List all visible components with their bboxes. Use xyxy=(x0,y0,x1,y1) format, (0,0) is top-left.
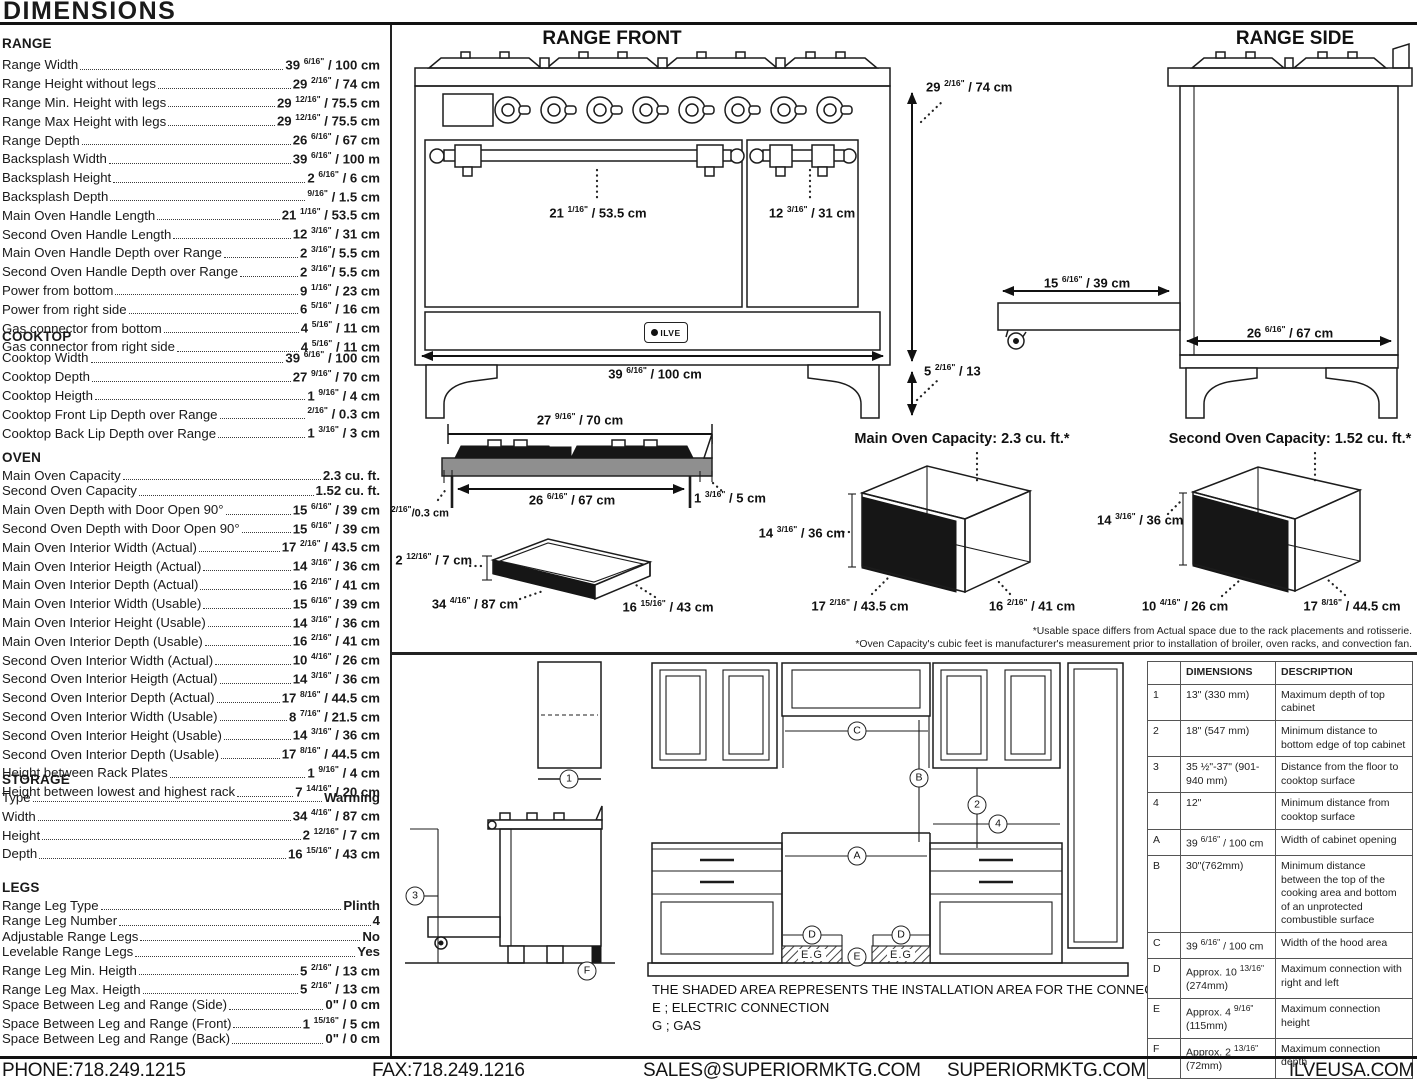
spec-value: 2 6/16" / 6 cm xyxy=(307,167,380,186)
footer-brand-website: ILVEUSA.COM xyxy=(1289,1060,1414,1080)
spec-heading-cooktop: COOKTOP xyxy=(2,329,380,344)
spec-label: Space Between Leg and Range (Side) xyxy=(2,997,227,1012)
leader-dots xyxy=(129,313,298,314)
footer-fax: FAX:718.249.1216 xyxy=(372,1060,525,1080)
spec-value: 39 6/16" / 100 m xyxy=(293,148,380,167)
spec-label: Type xyxy=(2,790,31,805)
table-header-key xyxy=(1148,662,1181,685)
leader-dots xyxy=(221,758,280,759)
spec-row: Backsplash Height 2 6/16" / 6 cm xyxy=(2,167,380,186)
main-oven-capacity-title: Main Oven Capacity: 2.3 cu. ft.* xyxy=(854,431,1069,447)
leader-dots xyxy=(199,551,280,552)
spec-section-oven: OVEN Main Oven Capacity 2.3 cu. ft. Seco… xyxy=(2,450,380,800)
spec-row: Space Between Leg and Range (Front) 1 15… xyxy=(2,1013,380,1032)
table-cell-description: Minimum distance from cooktop surface xyxy=(1276,793,1413,829)
table-cell-key: B xyxy=(1148,855,1181,932)
table-cell-dimension: 39 6/16" / 100 cm xyxy=(1181,933,1276,959)
spec-value: 0" / 0 cm xyxy=(325,997,380,1012)
spec-value: 15 6/16" / 39 cm xyxy=(293,593,380,612)
installation-elevation xyxy=(648,663,1128,976)
spec-value: 34 4/16" / 87 cm xyxy=(293,805,380,824)
table-cell-dimension: 35 ½"-37" (901-940 mm) xyxy=(1181,757,1276,793)
spec-value: 17 8/16" / 44.5 cm xyxy=(282,687,380,706)
spec-value: 15 6/16" / 39 cm xyxy=(293,499,380,518)
leader-dots xyxy=(226,514,291,515)
spec-row: Main Oven Interior Depth (Actual) 16 2/1… xyxy=(2,574,380,593)
cooktop-inner-dim-label: 26 6/16" / 67 cm xyxy=(529,491,615,507)
spec-row: Second Oven Handle Depth over Range 2 3/… xyxy=(2,261,380,280)
range-side-drawing xyxy=(998,44,1412,418)
table-cell-dimension: 18" (547 mm) xyxy=(1181,720,1276,756)
spec-label: Cooktop Back Lip Depth over Range xyxy=(2,426,216,441)
spec-label: Main Oven Interior Width (Usable) xyxy=(2,596,201,611)
spec-row: Range Leg Min. Heigth 5 2/16" / 13 cm xyxy=(2,960,380,979)
spec-label: Height xyxy=(2,828,40,843)
leader-dots xyxy=(139,495,314,496)
leader-dots xyxy=(215,664,291,665)
spec-label: Space Between Leg and Range (Front) xyxy=(2,1016,231,1031)
table-row: E Approx. 4 9/16" (115mm) Maximum connec… xyxy=(1148,999,1413,1039)
spec-label: Backsplash Width xyxy=(2,151,107,166)
spec-row: Main Oven Handle Depth over Range 2 3/16… xyxy=(2,242,380,261)
table-cell-description: Distance from the floor to cooktop surfa… xyxy=(1276,757,1413,793)
spec-label: Power from bottom xyxy=(2,283,113,298)
spec-row: Range Leg Type Plinth xyxy=(2,898,380,913)
footnote-capacity: *Oven Capacity's cubic feet is manufactu… xyxy=(855,639,1412,650)
spec-value: 2.3 cu. ft. xyxy=(323,468,380,483)
main-oven-width-label: 17 2/16" / 43.5 cm xyxy=(811,597,908,613)
marker-A: A xyxy=(848,847,867,866)
spec-label: Cooktop Depth xyxy=(2,369,90,384)
spec-value: 29 12/16" / 75.5 cm xyxy=(277,92,380,111)
spec-value: 1 3/16" / 3 cm xyxy=(307,422,380,441)
spec-label: Range Leg Number xyxy=(2,913,117,928)
spec-label: Width xyxy=(2,809,36,824)
spec-label: Second Oven Depth with Door Open 90° xyxy=(2,521,240,536)
spec-row: Space Between Leg and Range (Back) 0" / … xyxy=(2,1031,380,1046)
spec-label: Second Oven Interior Heigth (Actual) xyxy=(2,671,218,686)
spec-row: Cooktop Width 39 6/16" / 100 cm xyxy=(2,347,380,366)
spec-label: Range Width xyxy=(2,57,78,72)
spec-label: Main Oven Interior Width (Actual) xyxy=(2,540,197,555)
table-cell-description: Maximum connection height xyxy=(1276,999,1413,1039)
spec-row: Main Oven Handle Length 21 1/16" / 53.5 … xyxy=(2,204,380,223)
spec-value: 16 2/16" / 41 cm xyxy=(293,630,380,649)
table-cell-dimension: Approx. 4 9/16" (115mm) xyxy=(1181,999,1276,1039)
drawer-depth-dim-label: 16 15/16" / 43 cm xyxy=(622,598,713,614)
leader-dots xyxy=(119,925,371,926)
spec-row: Cooktop Depth 27 9/16" / 70 cm xyxy=(2,366,380,385)
spec-row: Cooktop Back Lip Depth over Range 1 3/16… xyxy=(2,422,380,441)
spec-label: Main Oven Interior Depth (Usable) xyxy=(2,634,203,649)
table-cell-key: E xyxy=(1148,999,1181,1039)
spec-label: Cooktop Front Lip Depth over Range xyxy=(2,407,218,422)
spec-value: 14 3/16" / 36 cm xyxy=(293,724,380,743)
spec-rows-storage: Type Warming Width 34 4/16" / 87 cm Heig… xyxy=(2,790,380,862)
spec-heading-legs: LEGS xyxy=(2,880,380,895)
spec-heading-oven: OVEN xyxy=(2,450,380,465)
second-oven-door xyxy=(747,140,858,307)
spec-label: Second Oven Interior Depth (Usable) xyxy=(2,747,219,762)
marker-3: 3 xyxy=(406,887,425,906)
footer-email: SALES@SUPERIORMKTG.COM xyxy=(643,1060,921,1080)
spec-value: 12 3/16" / 31 cm xyxy=(293,223,380,242)
table-row: 2 18" (547 mm) Minimum distance to botto… xyxy=(1148,720,1413,756)
range-height-dim-label: 29 2/16" / 74 cm xyxy=(926,78,1012,94)
spec-heading-range: RANGE xyxy=(2,36,380,51)
marker-D-right: D xyxy=(892,926,911,945)
spec-label: Main Oven Capacity xyxy=(2,468,121,483)
main-oven-height-label: 14 3/16" / 36 cm xyxy=(759,524,845,540)
spec-row: Second Oven Handle Length 12 3/16" / 31 … xyxy=(2,223,380,242)
spec-row: Power from bottom 9 1/16" / 23 cm xyxy=(2,280,380,299)
spec-row: Height 2 12/16" / 7 cm xyxy=(2,824,380,843)
spec-value: 4 xyxy=(373,913,380,928)
storage-drawer-drawing xyxy=(470,539,655,599)
leader-dots xyxy=(224,257,298,258)
leader-dots xyxy=(200,589,290,590)
spec-label: Second Oven Handle Depth over Range xyxy=(2,264,238,279)
spec-value: 6 5/16" / 16 cm xyxy=(300,298,380,317)
leader-dots xyxy=(242,532,291,533)
spec-label: Levelable Range Legs xyxy=(2,944,133,959)
leader-dots xyxy=(232,1043,323,1044)
marker-2: 2 xyxy=(968,796,987,815)
second-oven-depth-label: 17 8/16" / 44.5 cm xyxy=(1303,597,1400,613)
drawer-height-dim-label: 2 12/16" / 7 cm xyxy=(395,551,472,567)
spec-row: Second Oven Capacity 1.52 cu. ft. xyxy=(2,483,380,498)
table-cell-key: 1 xyxy=(1148,684,1181,720)
leader-dots xyxy=(143,993,298,994)
range-width-dim-label: 39 6/16" / 100 cm xyxy=(608,365,702,381)
table-cell-key: A xyxy=(1148,829,1181,855)
leader-dots xyxy=(158,88,291,89)
ilve-logo-badge: ILVE xyxy=(644,322,688,343)
open-door-profile xyxy=(998,303,1180,330)
spec-row: Second Oven Interior Depth (Usable) 17 8… xyxy=(2,743,380,762)
table-cell-dimension: 30"(762mm) xyxy=(1181,855,1276,932)
spec-row: Backsplash Width 39 6/16" / 100 m xyxy=(2,148,380,167)
installation-note: THE SHADED AREA REPRESENTS THE INSTALLAT… xyxy=(652,982,1198,997)
leader-dots xyxy=(123,479,321,480)
table-cell-dimension: 39 6/16" / 100 cm xyxy=(1181,829,1276,855)
spec-section-range: RANGE Range Width 39 6/16" / 100 cm Rang… xyxy=(2,36,380,355)
spec-label: Adjustable Range Legs xyxy=(2,929,138,944)
table-cell-key: C xyxy=(1148,933,1181,959)
cooktop-back-lip-label: 1 3/16" / 5 cm xyxy=(694,489,766,505)
second-oven-handle xyxy=(750,145,856,176)
marker-F: F xyxy=(578,962,597,981)
spec-label: Second Oven Interior Width (Usable) xyxy=(2,709,218,724)
leader-dots xyxy=(168,106,275,107)
spec-row: Space Between Leg and Range (Side) 0" / … xyxy=(2,997,380,1012)
dimensions-spec-sheet: DIMENSIONS RANGE Range Width 39 6/16" / … xyxy=(0,0,1417,1080)
table-cell-description: Maximum depth of top cabinet xyxy=(1276,684,1413,720)
leader-dots xyxy=(203,608,290,609)
spec-label: Cooktop Heigth xyxy=(2,388,93,403)
main-oven-handle xyxy=(430,145,744,176)
spec-row: Second Oven Interior Height (Usable) 14 … xyxy=(2,724,380,743)
table-row: B 30"(762mm) Minimum distance between th… xyxy=(1148,855,1413,932)
backsplash-profile xyxy=(1393,44,1409,68)
spec-row: Main Oven Interior Depth (Usable) 16 2/1… xyxy=(2,630,380,649)
table-header-row: DIMENSIONS DESCRIPTION xyxy=(1148,662,1413,685)
spec-row: Second Oven Depth with Door Open 90° 15 … xyxy=(2,518,380,537)
spec-value: 39 6/16" / 100 cm xyxy=(285,54,380,73)
table-cell-key: D xyxy=(1148,959,1181,999)
leader-dots xyxy=(205,645,291,646)
leader-dots xyxy=(42,839,301,840)
spec-row: Depth 16 15/16" / 43 cm xyxy=(2,843,380,862)
table-cell-description: Width of the hood area xyxy=(1276,933,1413,959)
table-body: 1 13" (330 mm) Maximum depth of top cabi… xyxy=(1148,684,1413,1078)
spec-value: Plinth xyxy=(343,898,380,913)
spec-row: Main Oven Interior Width (Actual) 17 2/1… xyxy=(2,536,380,555)
leg-height-dim-label: 5 2/16" / 13 xyxy=(924,362,981,378)
leader-dots xyxy=(139,974,298,975)
ilve-logo-text: ILVE xyxy=(660,328,680,338)
spec-label: Cooktop Width xyxy=(2,350,89,365)
spec-value: 16 2/16" / 41 cm xyxy=(293,574,380,593)
spec-row: Levelable Range Legs Yes xyxy=(2,944,380,959)
spec-row: Power from right side 6 5/16" / 16 cm xyxy=(2,298,380,317)
spec-value: No xyxy=(362,929,380,944)
leader-dots xyxy=(92,381,291,382)
spec-value: 2 3/16"/ 5.5 cm xyxy=(300,242,380,261)
spec-row: Backsplash Depth 9/16" / 1.5 cm xyxy=(2,186,380,205)
spec-label: Space Between Leg and Range (Back) xyxy=(2,1031,230,1046)
spec-value: 17 8/16" / 44.5 cm xyxy=(282,743,380,762)
shaded-label-left: E.G xyxy=(798,949,826,961)
spec-row: Range Height without legs 29 2/16" / 74 … xyxy=(2,73,380,92)
second-oven-width-label: 10 4/16" / 26 cm xyxy=(1142,597,1228,613)
marker-E: E xyxy=(848,948,867,967)
leader-dots xyxy=(224,739,291,740)
spec-label: Second Oven Capacity xyxy=(2,483,137,498)
spec-value: 9 1/16" / 23 cm xyxy=(300,280,380,299)
spec-label: Range Max Height with legs xyxy=(2,114,166,129)
footnote-usable-space: *Usable space differs from Actual space … xyxy=(1033,626,1412,637)
spec-value: 14 3/16" / 36 cm xyxy=(293,555,380,574)
spec-label: Main Oven Interior Depth (Actual) xyxy=(2,577,198,592)
spec-row: Main Oven Depth with Door Open 90° 15 6/… xyxy=(2,499,380,518)
spec-label: Range Min. Height with legs xyxy=(2,95,166,110)
installation-side-view xyxy=(405,662,615,963)
spec-label: Range Leg Max. Heigth xyxy=(2,982,141,997)
leader-dots xyxy=(220,720,288,721)
spec-row: Range Depth 26 6/16" / 67 cm xyxy=(2,129,380,148)
spec-row: Type Warming xyxy=(2,790,380,805)
leader-dots xyxy=(38,820,291,821)
spec-label: Main Oven Interior Height (Usable) xyxy=(2,615,206,630)
spec-label: Second Oven Interior Depth (Actual) xyxy=(2,690,215,705)
leader-dots xyxy=(229,1009,323,1010)
leader-dots xyxy=(220,418,306,419)
second-handle-dim-label: 12 3/16" / 31 cm xyxy=(769,204,855,220)
spec-label: Main Oven Depth with Door Open 90° xyxy=(2,502,224,517)
second-oven-capacity-title: Second Oven Capacity: 1.52 cu. ft.* xyxy=(1169,431,1412,447)
footer-website: SUPERIORMKTG.COM xyxy=(947,1060,1146,1080)
second-oven-capacity-drawing xyxy=(1168,453,1360,596)
leader-dots xyxy=(135,956,355,957)
spec-label: Main Oven Interior Heigth (Actual) xyxy=(2,559,201,574)
table-row: A 39 6/16" / 100 cm Width of cabinet ope… xyxy=(1148,829,1413,855)
spec-label: Power from right side xyxy=(2,302,127,317)
spec-value: 2 12/16" / 7 cm xyxy=(303,824,380,843)
marker-4: 4 xyxy=(989,815,1008,834)
spec-value: Yes xyxy=(357,944,380,959)
leader-dots xyxy=(140,940,360,941)
range-depth-dim-label: 26 6/16" / 67 cm xyxy=(1247,324,1333,340)
leader-dots xyxy=(113,182,305,183)
spec-value: 10 4/16" / 26 cm xyxy=(293,649,380,668)
spec-label: Range Leg Min. Heigth xyxy=(2,963,137,978)
spec-label: Second Oven Handle Length xyxy=(2,227,171,242)
spec-value: 26 6/16" / 67 cm xyxy=(293,129,380,148)
spec-value: 9/16" / 1.5 cm xyxy=(307,186,380,205)
leader-dots xyxy=(82,144,291,145)
table-cell-description: Maximum connection with right and left xyxy=(1276,959,1413,999)
spec-row: Main Oven Capacity 2.3 cu. ft. xyxy=(2,468,380,483)
spec-row: Second Oven Interior Heigth (Actual) 14 … xyxy=(2,668,380,687)
spec-value: 1 9/16" / 4 cm xyxy=(307,385,380,404)
door-open-dim-label: 15 6/16" / 39 cm xyxy=(1044,274,1130,290)
table-header-description: DESCRIPTION xyxy=(1276,662,1413,685)
leader-dots xyxy=(208,626,291,627)
leader-dots xyxy=(220,683,291,684)
leader-dots xyxy=(115,294,298,295)
spec-row: Range Width 39 6/16" / 100 cm xyxy=(2,54,380,73)
spec-value: 14 3/16" / 36 cm xyxy=(293,612,380,631)
leader-dots xyxy=(233,1027,300,1028)
leader-dots xyxy=(80,69,283,70)
spec-value: 27 9/16" / 70 cm xyxy=(293,366,380,385)
spec-value: 2/16" / 0.3 cm xyxy=(307,403,380,422)
spec-value: 15 6/16" / 39 cm xyxy=(293,518,380,537)
main-oven-capacity-drawing xyxy=(838,453,1030,594)
spec-value: 21 1/16" / 53.5 cm xyxy=(282,204,380,223)
table-cell-key: 2 xyxy=(1148,720,1181,756)
spec-label: Backsplash Depth xyxy=(2,189,108,204)
leader-dots xyxy=(110,200,305,201)
spec-rows-oven: Main Oven Capacity 2.3 cu. ft. Second Ov… xyxy=(2,468,380,800)
spec-value: 8 7/16" / 21.5 cm xyxy=(289,706,380,725)
spec-column: RANGE Range Width 39 6/16" / 100 cm Rang… xyxy=(0,24,390,1056)
leader-dots xyxy=(218,437,305,438)
spec-row: Main Oven Interior Heigth (Actual) 14 3/… xyxy=(2,555,380,574)
table-cell-dimension: 13" (330 mm) xyxy=(1181,684,1276,720)
spec-section-storage: STORAGE Type Warming Width 34 4/16" / 87… xyxy=(2,772,380,862)
spec-row: Main Oven Interior Width (Usable) 15 6/1… xyxy=(2,593,380,612)
table-cell-dimension: 12" xyxy=(1181,793,1276,829)
spec-row: Range Leg Number 4 xyxy=(2,913,380,928)
table-cell-key: 4 xyxy=(1148,793,1181,829)
spec-value: 5 2/16" / 13 cm xyxy=(300,978,380,997)
leader-dots xyxy=(203,570,290,571)
leader-dots xyxy=(33,801,322,802)
main-oven-depth-label: 16 2/16" / 41 cm xyxy=(989,597,1075,613)
spec-row: Range Leg Max. Heigth 5 2/16" / 13 cm xyxy=(2,978,380,997)
table-header-dimensions: DIMENSIONS xyxy=(1181,662,1276,685)
leader-dots xyxy=(109,163,291,164)
leader-dots xyxy=(39,858,286,859)
leader-dots xyxy=(157,219,279,220)
table-cell-key: 3 xyxy=(1148,757,1181,793)
cooktop-width-dim-label: 27 9/16" / 70 cm xyxy=(537,411,623,427)
spec-value: 29 2/16" / 74 cm xyxy=(293,73,380,92)
spec-value: 14 3/16" / 36 cm xyxy=(293,668,380,687)
spec-value: 1.52 cu. ft. xyxy=(316,483,381,498)
leader-dots xyxy=(91,362,284,363)
spec-section-cooktop: COOKTOP Cooktop Width 39 6/16" / 100 cm … xyxy=(2,329,380,441)
spec-label: Second Oven Interior Width (Actual) xyxy=(2,653,213,668)
control-knobs xyxy=(495,97,852,123)
spec-row: Second Oven Interior Width (Usable) 8 7/… xyxy=(2,706,380,725)
table-row: 1 13" (330 mm) Maximum depth of top cabi… xyxy=(1148,684,1413,720)
table-row: 4 12" Minimum distance from cooktop surf… xyxy=(1148,793,1413,829)
leader-dots xyxy=(168,125,275,126)
shaded-label-right: E.G xyxy=(887,949,915,961)
cooktop-front-lip-label: 2/16"/0.3 cm xyxy=(391,504,449,520)
marker-C: C xyxy=(848,722,867,741)
spec-value: 17 2/16" / 43.5 cm xyxy=(282,536,380,555)
spec-row: Main Oven Interior Height (Usable) 14 3/… xyxy=(2,612,380,631)
table-cell-description: Minimum distance between the top of the … xyxy=(1276,855,1413,932)
leader-dots xyxy=(101,909,342,910)
marker-1: 1 xyxy=(560,770,579,789)
spec-row: Range Max Height with legs 29 12/16" / 7… xyxy=(2,110,380,129)
spec-value: 16 15/16" / 43 cm xyxy=(288,843,380,862)
leader-dots xyxy=(217,702,280,703)
legend-gas: G ; GAS xyxy=(652,1018,701,1033)
spec-value: 29 12/16" / 75.5 cm xyxy=(277,110,380,129)
spec-heading-storage: STORAGE xyxy=(2,772,380,787)
spec-value: 5 2/16" / 13 cm xyxy=(300,960,380,979)
spec-label: Range Height without legs xyxy=(2,76,156,91)
spec-value: Warming xyxy=(324,790,380,805)
spec-rows-legs: Range Leg Type Plinth Range Leg Number 4… xyxy=(2,898,380,1047)
spec-row: Cooktop Front Lip Depth over Range 2/16"… xyxy=(2,403,380,422)
leader-dots xyxy=(173,238,290,239)
spec-row: Second Oven Interior Width (Actual) 10 4… xyxy=(2,649,380,668)
table-cell-description: Width of cabinet opening xyxy=(1276,829,1413,855)
spec-rows-range: Range Width 39 6/16" / 100 cm Range Heig… xyxy=(2,54,380,355)
spec-label: Depth xyxy=(2,846,37,861)
spec-row: Range Min. Height with legs 29 12/16" / … xyxy=(2,92,380,111)
table-row: D Approx. 10 13/16" (274mm) Maximum conn… xyxy=(1148,959,1413,999)
spec-label: Main Oven Handle Depth over Range xyxy=(2,245,222,260)
footer-rule xyxy=(0,1056,1417,1059)
spec-rows-cooktop: Cooktop Width 39 6/16" / 100 cm Cooktop … xyxy=(2,347,380,441)
spec-row: Second Oven Interior Depth (Actual) 17 8… xyxy=(2,687,380,706)
installation-table: DIMENSIONS DESCRIPTION 1 13" (330 mm) Ma… xyxy=(1147,661,1413,1079)
spec-section-legs: LEGS Range Leg Type Plinth Range Leg Num… xyxy=(2,880,380,1047)
main-handle-dim-label: 21 1/16" / 53.5 cm xyxy=(549,204,646,220)
table-row: 3 35 ½"-37" (901-940 mm) Distance from t… xyxy=(1148,757,1413,793)
spec-value: 0" / 0 cm xyxy=(325,1031,380,1046)
spec-row: Adjustable Range Legs No xyxy=(2,929,380,944)
spec-label: Second Oven Interior Height (Usable) xyxy=(2,728,222,743)
spec-label: Range Depth xyxy=(2,133,80,148)
range-front-drawing xyxy=(415,52,944,418)
range-front-title: RANGE FRONT xyxy=(542,28,681,50)
marker-D-left: D xyxy=(803,926,822,945)
footer-phone: PHONE:718.249.1215 xyxy=(2,1060,186,1080)
spec-label: Main Oven Handle Length xyxy=(2,208,155,223)
range-side-title: RANGE SIDE xyxy=(1236,28,1354,50)
table-cell-description: Minimum distance to bottom edge of top c… xyxy=(1276,720,1413,756)
spec-row: Cooktop Heigth 1 9/16" / 4 cm xyxy=(2,385,380,404)
